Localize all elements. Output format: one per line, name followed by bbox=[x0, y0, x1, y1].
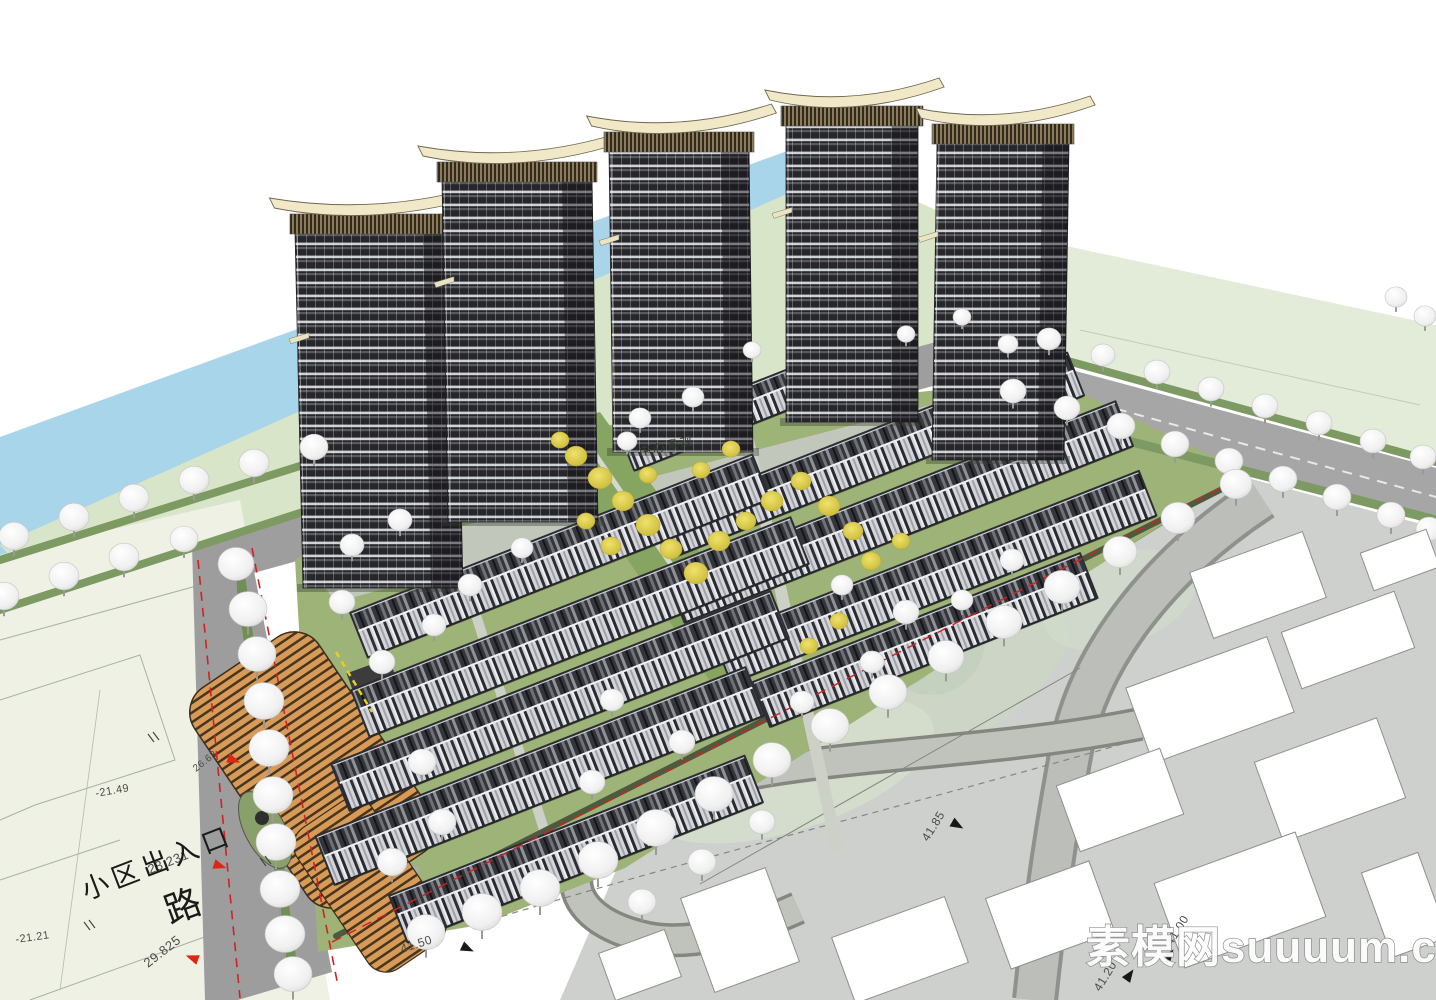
tower-3 bbox=[587, 104, 777, 456]
yellow-tree bbox=[791, 472, 811, 490]
yellow-tree bbox=[800, 638, 818, 654]
yellow-tree bbox=[588, 467, 612, 489]
yellow-tree bbox=[660, 539, 682, 559]
tower-louver-band bbox=[290, 214, 460, 234]
yellow-tree bbox=[708, 531, 730, 551]
yellow-tree bbox=[684, 562, 708, 584]
yellow-tree bbox=[861, 552, 881, 570]
yellow-tree bbox=[692, 462, 710, 478]
tower-side-face bbox=[892, 124, 918, 422]
tower-louver-band bbox=[437, 162, 597, 182]
tower-4 bbox=[765, 78, 944, 426]
yellow-tree bbox=[736, 512, 756, 530]
tower-side-face bbox=[721, 150, 753, 452]
tower-2 bbox=[418, 134, 621, 526]
yellow-tree bbox=[761, 491, 783, 511]
tower-louver-band bbox=[781, 106, 923, 126]
yellow-tree bbox=[818, 496, 840, 516]
yellow-tree bbox=[577, 513, 595, 529]
yellow-tree bbox=[722, 441, 740, 457]
yellow-tree bbox=[892, 533, 910, 549]
yellow-tree bbox=[565, 446, 587, 466]
tower-louver-band bbox=[604, 132, 754, 152]
yellow-tree bbox=[551, 432, 569, 448]
yellow-tree bbox=[601, 537, 621, 555]
architectural-rendering: -21.49-21.2128.23129.82526.6341.5041.854… bbox=[0, 0, 1436, 1000]
yellow-tree bbox=[636, 514, 660, 536]
yellow-tree bbox=[639, 467, 657, 483]
yellow-tree bbox=[612, 491, 634, 511]
site-rendering-canvas: -21.49-21.2128.23129.82526.6341.5041.854… bbox=[0, 0, 1436, 1000]
yellow-tree bbox=[830, 613, 848, 629]
yellow-tree bbox=[843, 522, 863, 540]
tower-louver-band bbox=[932, 124, 1074, 144]
watermark: 素模网suuuum.com bbox=[1086, 923, 1436, 972]
